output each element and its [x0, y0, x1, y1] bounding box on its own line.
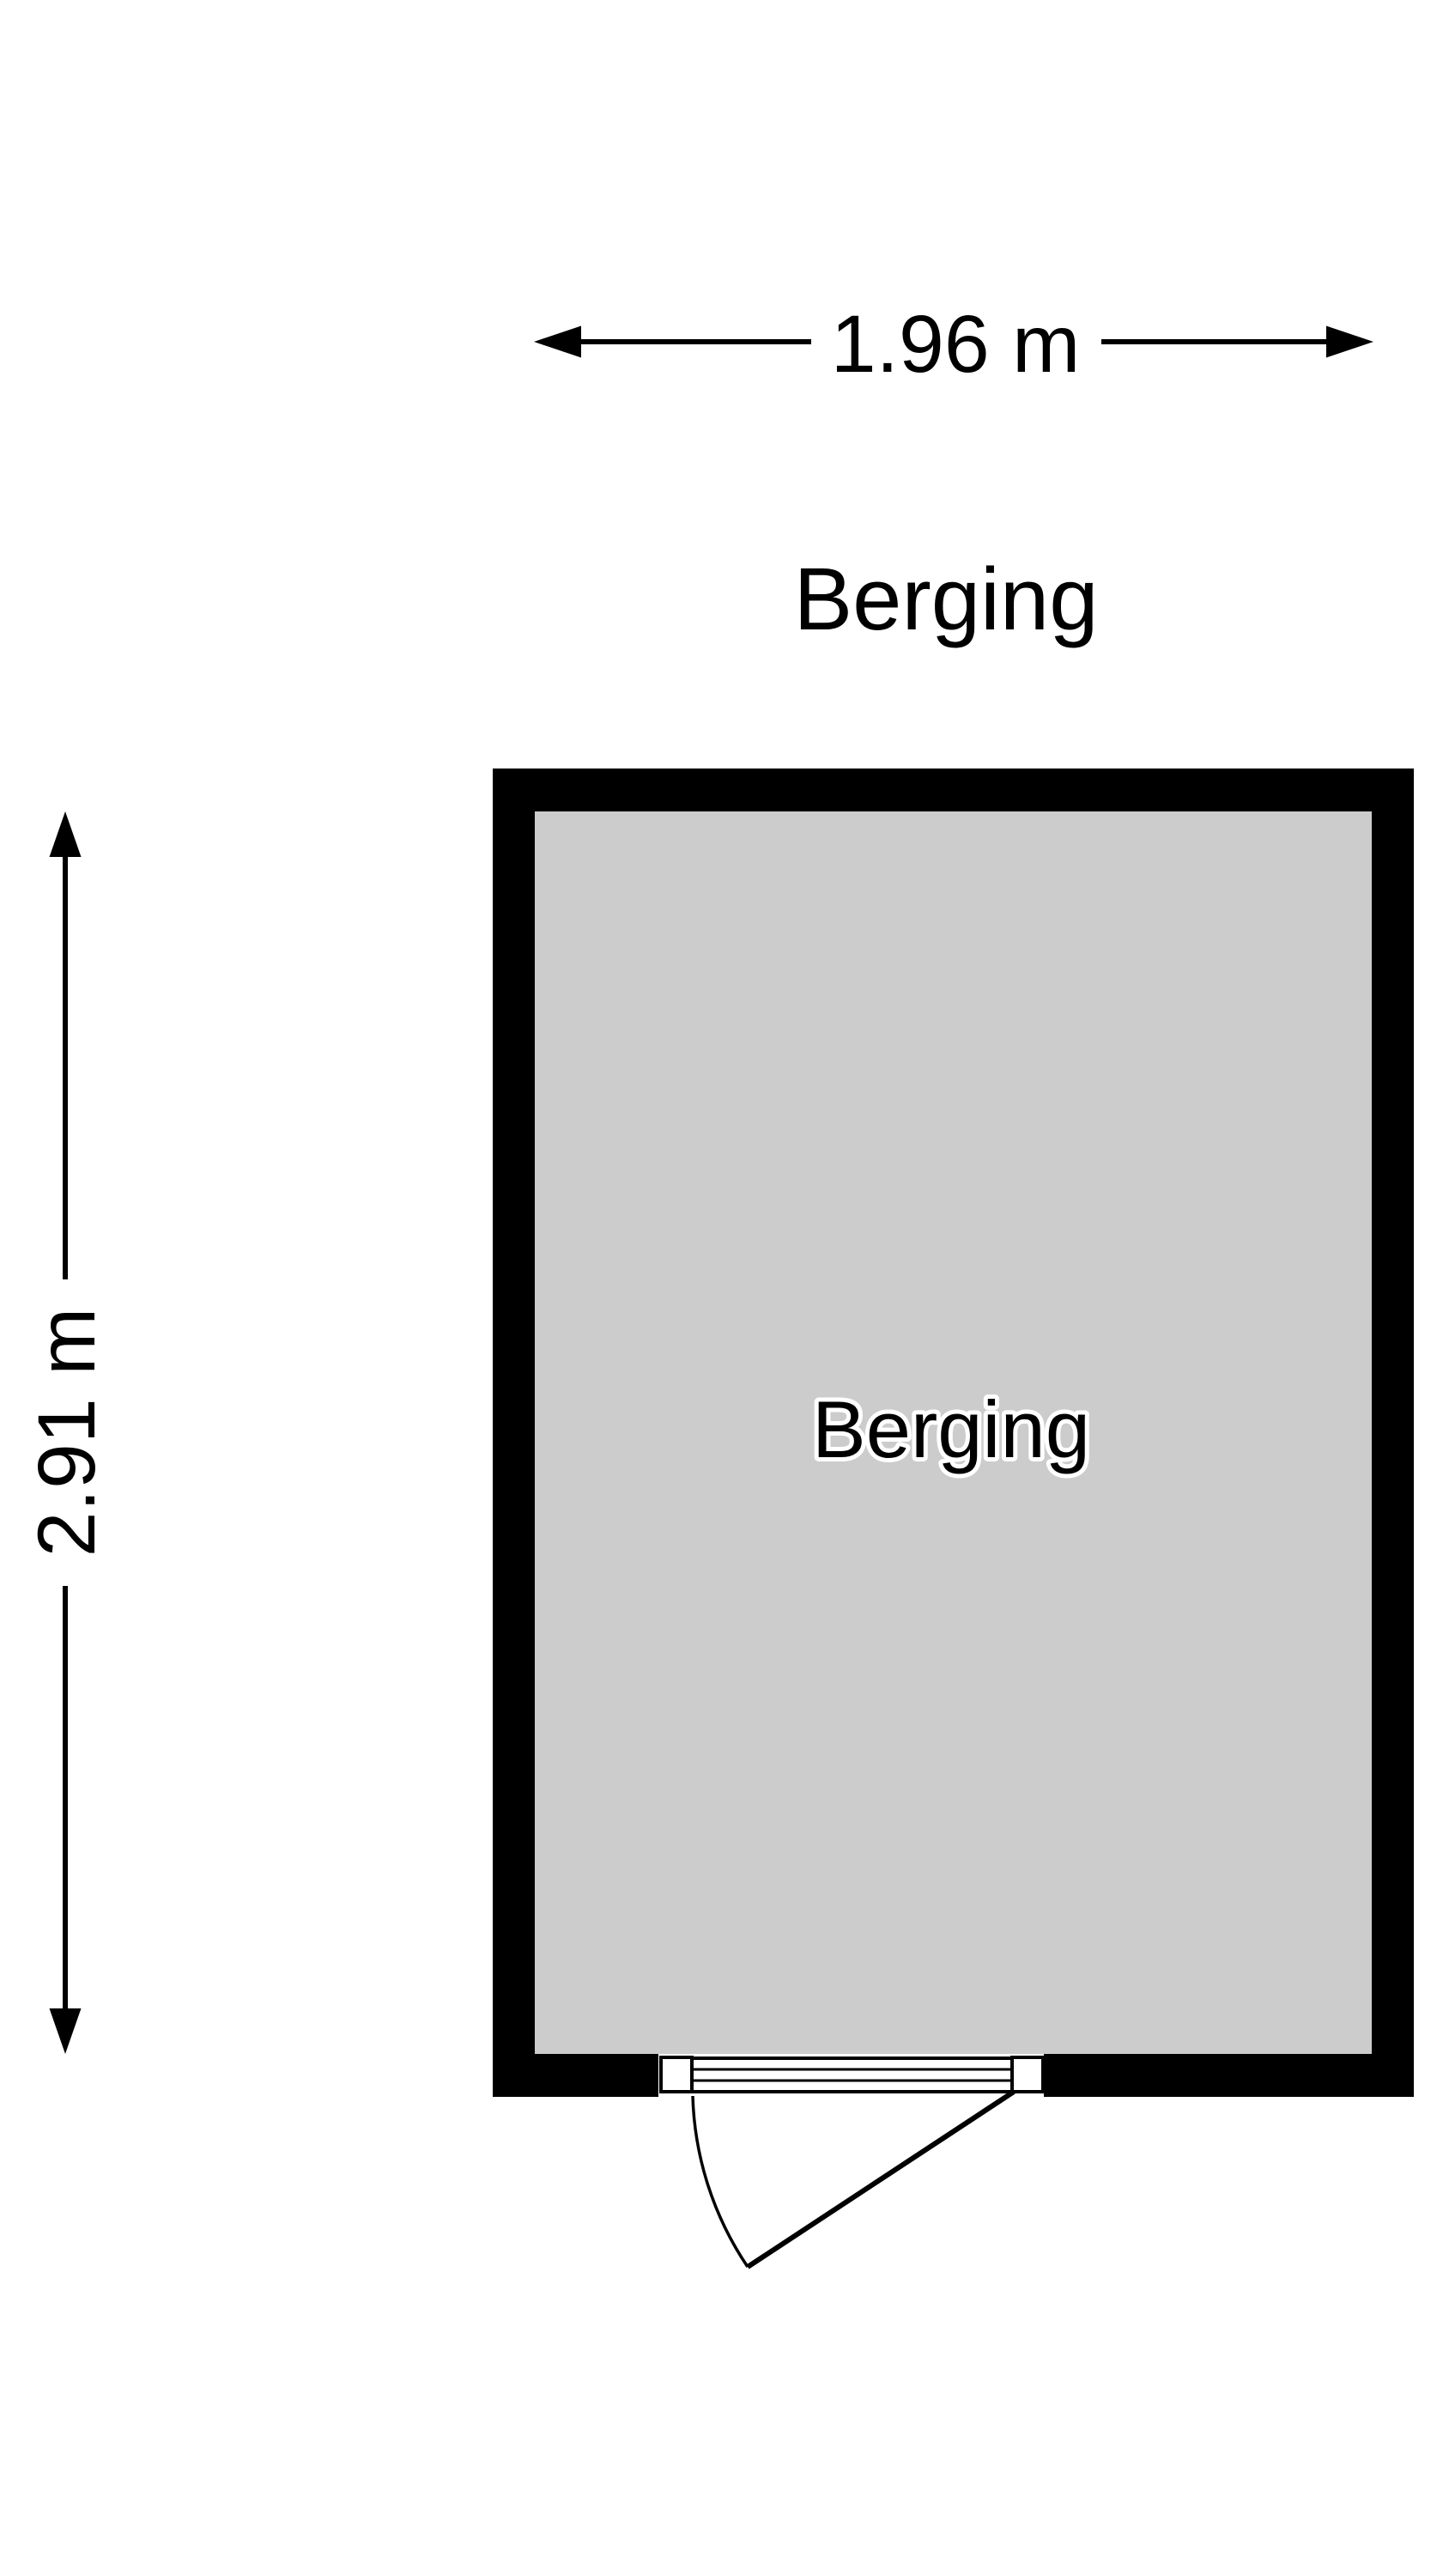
door-jamb-right	[1012, 2057, 1043, 2092]
door-leaf	[748, 2092, 1014, 2267]
door	[658, 2054, 1044, 2267]
door-swing-arc	[693, 2096, 748, 2267]
width-dimension-label: 1.96 m	[831, 299, 1080, 390]
arrowhead-left-icon	[534, 326, 581, 358]
door-panel	[692, 2058, 1012, 2092]
arrowhead-right-icon	[1326, 326, 1373, 358]
room-label: Berging	[812, 1384, 1090, 1474]
height-dimension: 2.91 m	[21, 811, 112, 2054]
arrowhead-down-icon	[50, 2008, 82, 2054]
arrowhead-up-icon	[50, 811, 82, 857]
height-dimension-label: 2.91 m	[21, 1308, 112, 1557]
floorplan-drawing: 1.96 m Berging Berging 2.91 m	[0, 0, 1449, 2576]
floorplan-canvas: 1.96 m Berging Berging 2.91 m	[0, 0, 1449, 2576]
door-jamb-left	[661, 2057, 692, 2092]
floorplan-title: Berging	[793, 550, 1098, 648]
width-dimension: 1.96 m	[534, 299, 1373, 390]
room: Berging	[493, 769, 1414, 2097]
